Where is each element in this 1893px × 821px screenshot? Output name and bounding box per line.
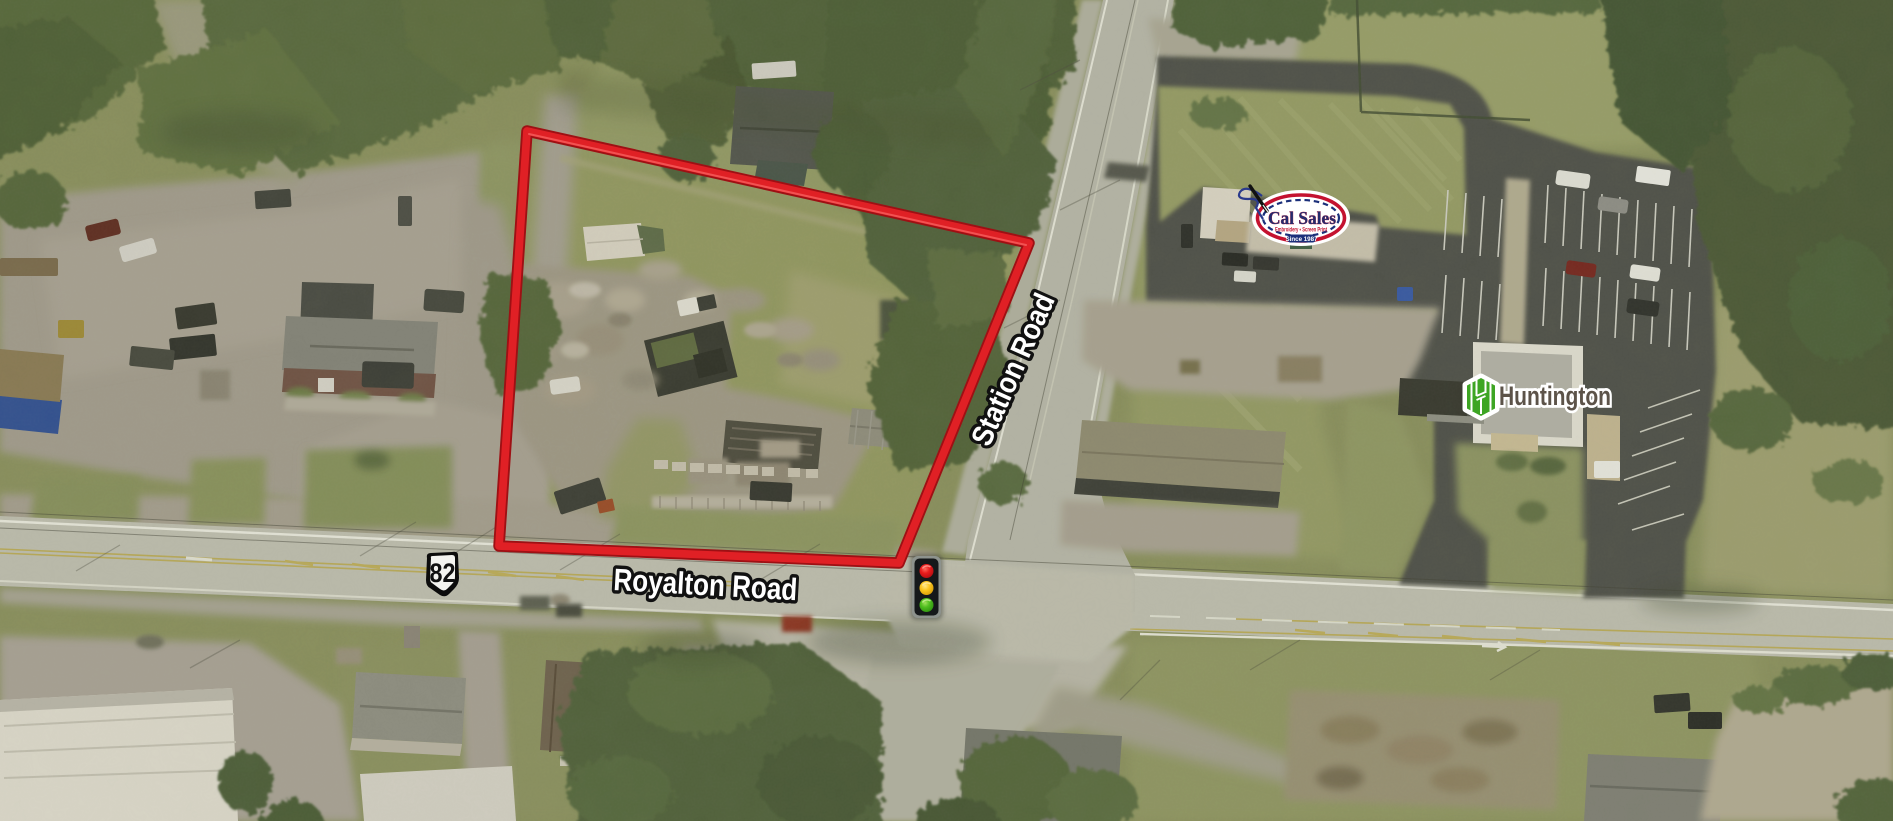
svg-text:Since 1987: Since 1987 xyxy=(1286,236,1319,243)
svg-text:Huntington: Huntington xyxy=(1499,381,1611,411)
svg-text:Embroidery • Screen Print: Embroidery • Screen Print xyxy=(1275,228,1327,234)
svg-text:82: 82 xyxy=(430,558,456,588)
svg-text:Cal Sales: Cal Sales xyxy=(1268,208,1336,228)
